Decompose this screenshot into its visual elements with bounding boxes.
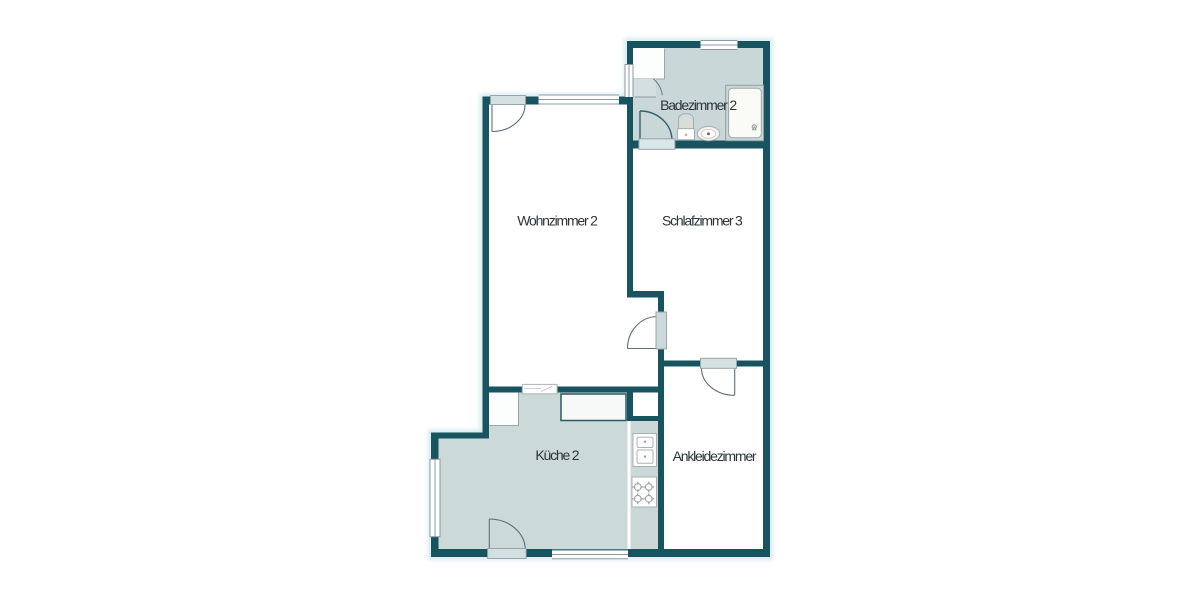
svg-text:Badezimmer 2: Badezimmer 2 (660, 97, 737, 113)
svg-text:Wohnzimmer 2: Wohnzimmer 2 (517, 212, 598, 228)
svg-text:Ankleidezimmer: Ankleidezimmer (673, 448, 757, 464)
svg-text:Küche 2: Küche 2 (535, 447, 579, 463)
svg-text:Schlafzimmer 3: Schlafzimmer 3 (662, 212, 743, 228)
